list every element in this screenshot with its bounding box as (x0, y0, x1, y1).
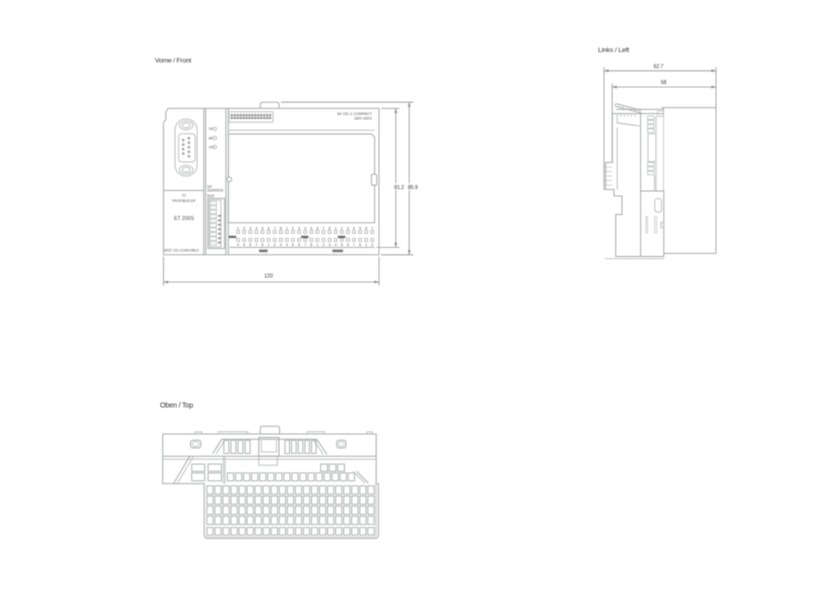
svg-text:6: 6 (365, 227, 367, 231)
svg-text:3: 3 (298, 227, 300, 231)
svg-text:Oben / Top: Oben / Top (160, 401, 193, 410)
svg-text:62.7: 62.7 (654, 64, 664, 70)
svg-text:6: 6 (249, 243, 251, 247)
svg-text:6: 6 (316, 227, 318, 231)
svg-text:8: 8 (262, 243, 264, 247)
svg-text:7: 7 (323, 227, 325, 231)
svg-text:4: 4 (304, 227, 306, 231)
svg-text:1: 1 (237, 227, 239, 231)
svg-text:1: 1 (316, 243, 318, 247)
svg-text:1: 1 (268, 243, 270, 247)
svg-text:8: 8 (280, 227, 282, 231)
svg-text:58: 58 (661, 80, 667, 86)
svg-text:7: 7 (371, 227, 373, 231)
svg-text:3: 3 (249, 227, 251, 231)
svg-text:7: 7 (255, 243, 257, 247)
svg-text:2: 2 (341, 227, 343, 231)
svg-text:85.9: 85.9 (408, 185, 418, 191)
svg-text:5: 5 (359, 227, 361, 231)
svg-text:5: 5 (262, 227, 264, 231)
svg-text:4: 4 (255, 227, 257, 231)
svg-text:8: 8 (359, 243, 361, 247)
svg-text:ADDRESS: ADDRESS (207, 189, 224, 193)
svg-text:5: 5 (292, 243, 294, 247)
svg-text:81.2: 81.2 (394, 185, 404, 191)
svg-text:120: 120 (264, 273, 273, 279)
svg-text:2: 2 (243, 227, 245, 231)
svg-text:7: 7 (353, 243, 355, 247)
svg-text:2: 2 (323, 243, 325, 247)
svg-text:3: 3 (329, 243, 331, 247)
svg-text:6: 6 (268, 227, 270, 231)
svg-text:1: 1 (365, 243, 367, 247)
svg-text:X1: X1 (182, 194, 186, 198)
svg-text:4: 4 (353, 227, 355, 231)
svg-text:3: 3 (280, 243, 282, 247)
svg-text:4: 4 (286, 243, 288, 247)
svg-text:2: 2 (292, 227, 294, 231)
svg-text:Vorne / Front: Vorne / Front (155, 58, 191, 65)
svg-text:PROFIBUS-DP: PROFIBUS-DP (172, 199, 196, 203)
svg-text:16DI 16DO: 16DI 16DO (354, 117, 372, 121)
svg-text:4: 4 (237, 243, 239, 247)
svg-text:5: 5 (341, 243, 343, 247)
svg-text:2: 2 (274, 243, 276, 247)
svg-text:4: 4 (335, 243, 337, 247)
svg-text:1: 1 (286, 227, 288, 231)
svg-text:7: 7 (304, 243, 306, 247)
svg-text:3: 3 (347, 227, 349, 231)
svg-text:BUS: BUS (207, 194, 215, 198)
svg-text:8: 8 (329, 227, 331, 231)
svg-text:5: 5 (310, 227, 312, 231)
svg-text:8: 8 (310, 243, 312, 247)
svg-text:6: 6 (347, 243, 349, 247)
svg-text:5: 5 (243, 243, 245, 247)
svg-text:1: 1 (335, 227, 337, 231)
svg-text:ET 200S: ET 200S (174, 216, 195, 222)
svg-text:6ES7 151-1CA00-8BL0: 6ES7 151-1CA00-8BL0 (164, 248, 199, 252)
svg-text:6: 6 (298, 243, 300, 247)
svg-text:2: 2 (371, 243, 373, 247)
svg-text:Links / Left: Links / Left (598, 47, 629, 54)
svg-text:7: 7 (274, 227, 276, 231)
svg-text:IM 151-1 COMPACT: IM 151-1 COMPACT (337, 112, 372, 116)
